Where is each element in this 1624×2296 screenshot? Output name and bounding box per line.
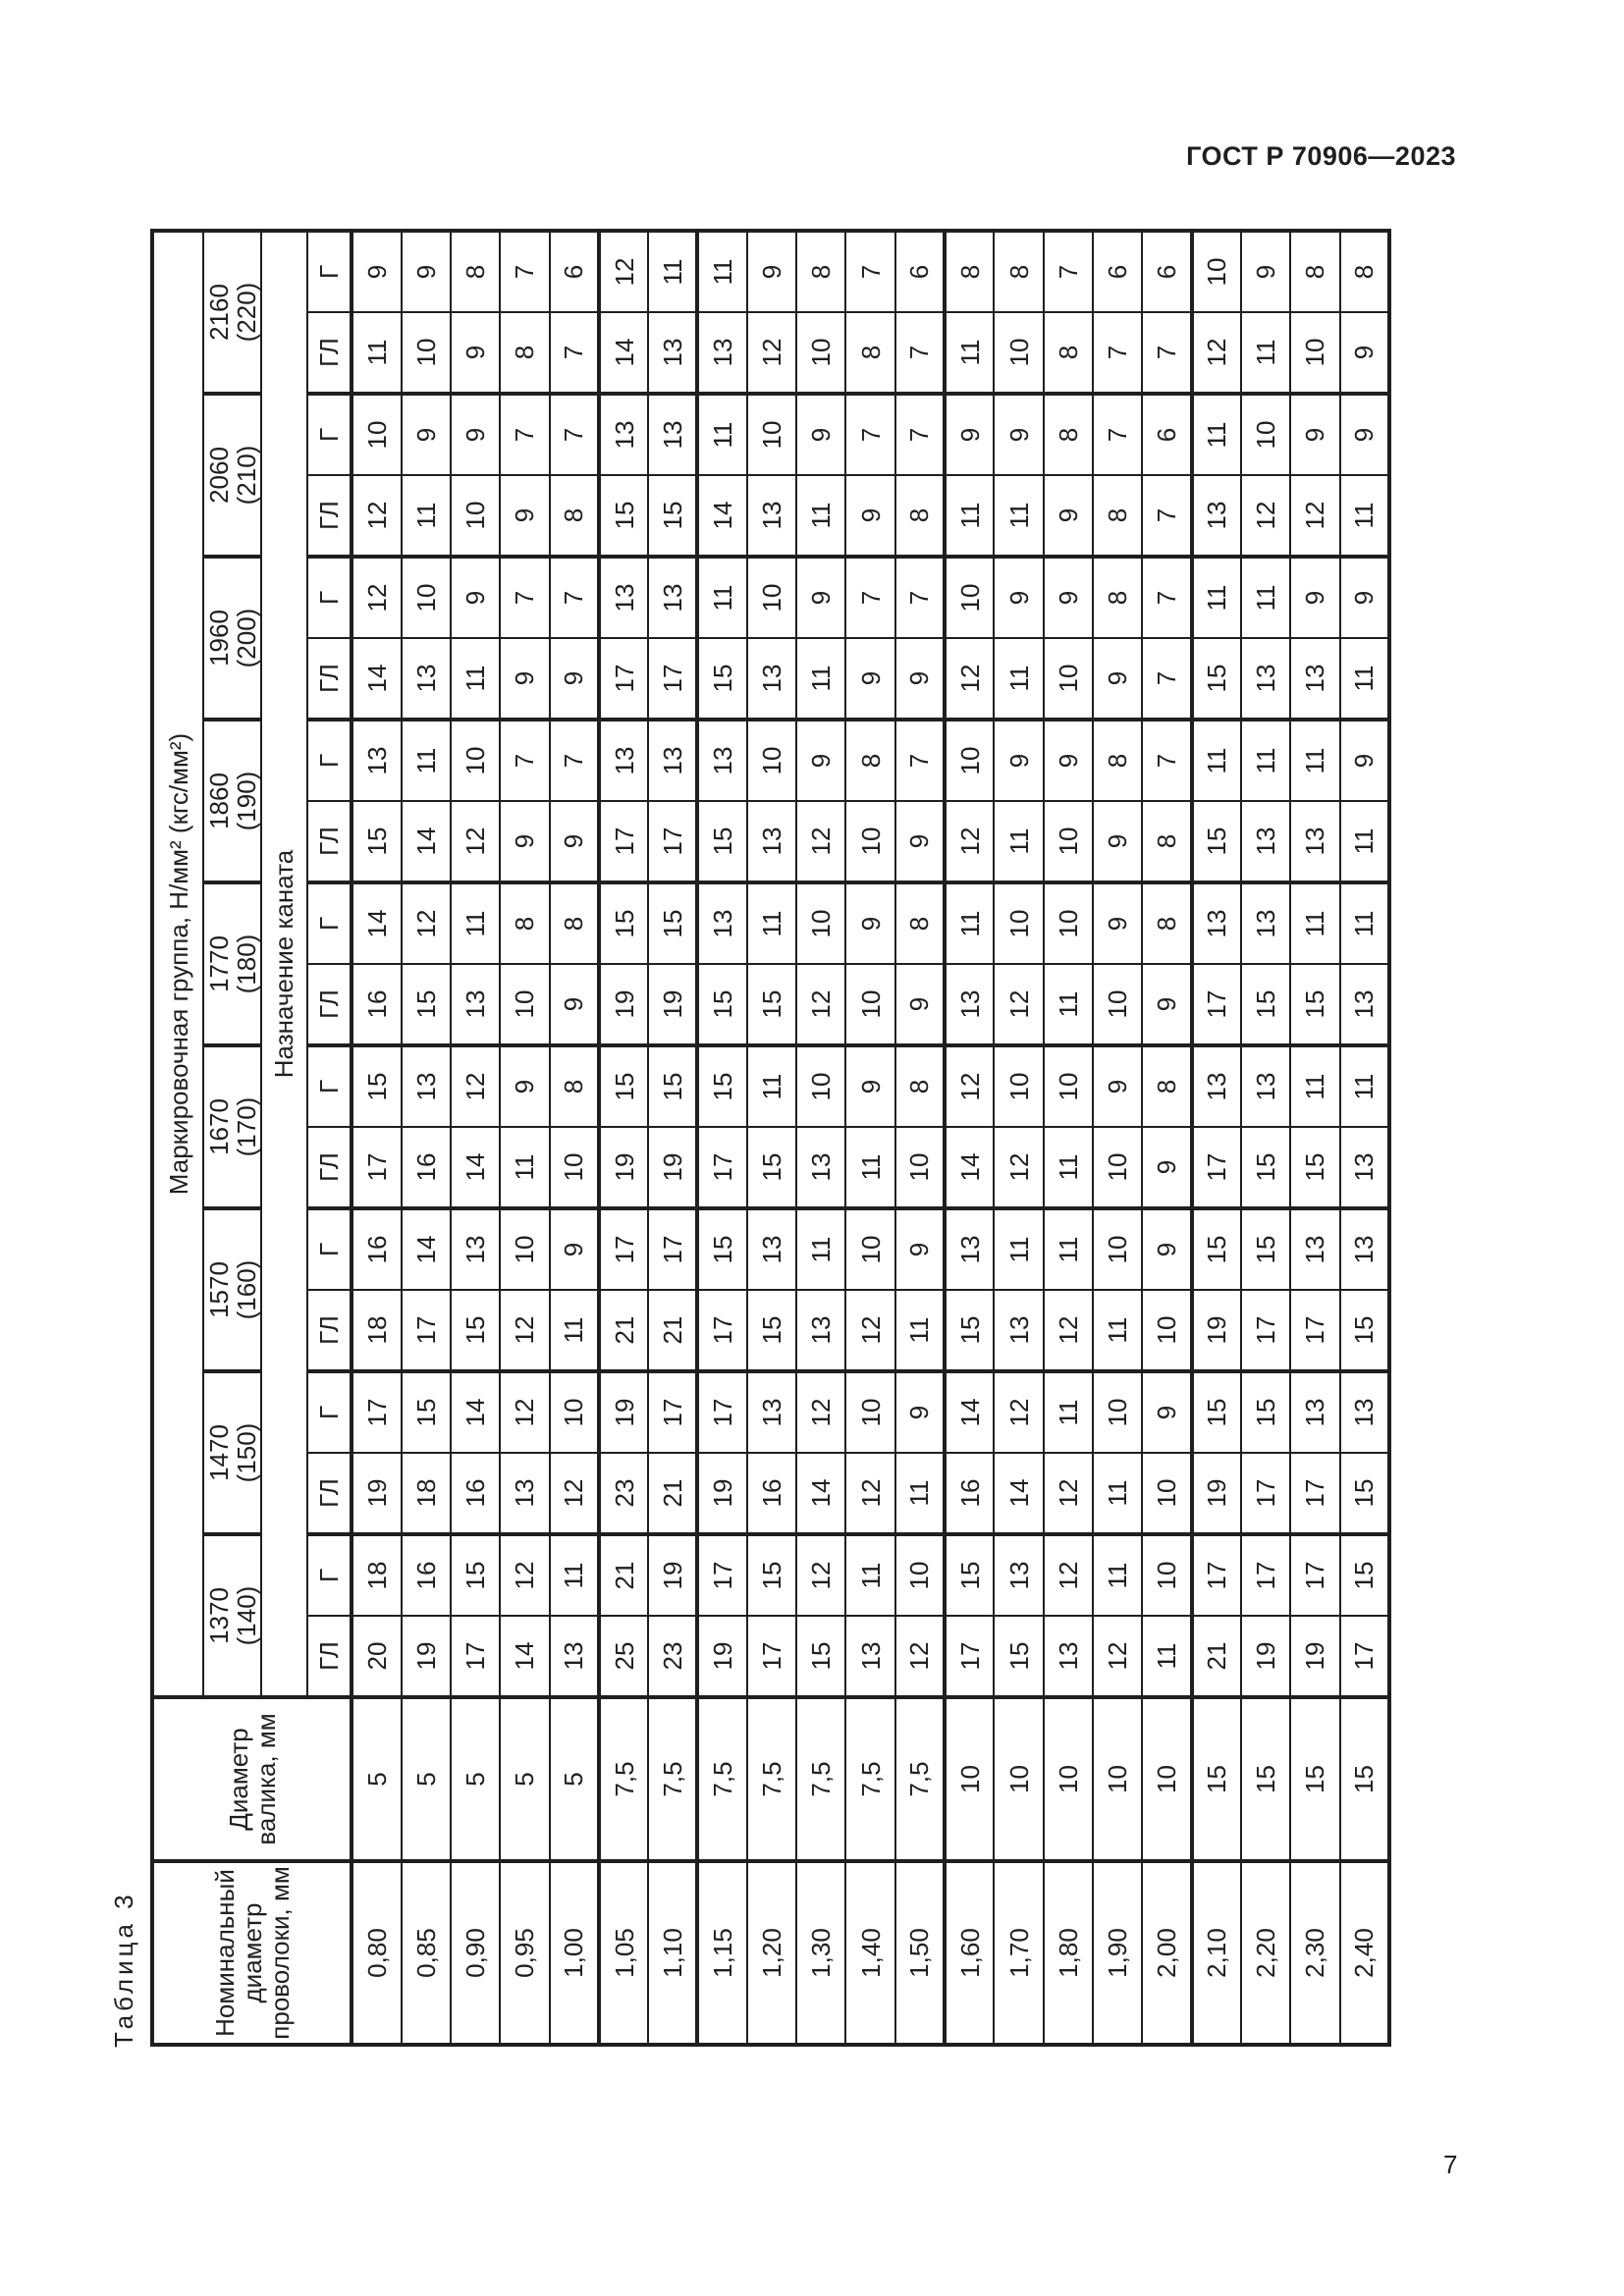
wire-diameter-value: 1,05 [599,1861,648,2045]
bend-value-g: 16 [402,1534,451,1616]
table-row: 1,207,5171516131513151115111310131013101… [747,231,796,2045]
bend-value-gl: 15 [747,1127,796,1208]
subheader-gl: ГЛ [307,1290,352,1371]
bend-value-g: 10 [796,1045,845,1127]
group-label: 1670 (170) [203,1045,260,1208]
bend-value-g: 8 [1290,231,1339,312]
bend-value-g: 7 [500,231,549,312]
roller-diameter-value: 10 [994,1697,1043,1861]
bend-value-g: 17 [1241,1534,1290,1616]
bend-value-g: 15 [648,1045,697,1127]
bend-value-g: 8 [1340,231,1389,312]
bend-value-g: 17 [352,1371,401,1453]
roller-diameter-header: Диаметр валика, мм [152,1697,352,1861]
bend-value-g: 9 [747,231,796,312]
bend-value-gl: 11 [994,475,1043,557]
bend-value-gl: 12 [945,638,994,720]
bend-value-g: 10 [500,1208,549,1290]
bend-value-g: 6 [1142,394,1191,475]
bend-value-gl: 15 [994,1616,1043,1697]
bend-value-gl: 9 [895,638,945,720]
bend-value-g: 15 [648,882,697,964]
wire-diameter-value: 1,90 [1093,1861,1142,2045]
bend-value-gl: 8 [550,475,599,557]
wire-diameter-value: 2,00 [1142,1861,1191,2045]
wire-diameter-value: 0,90 [451,1861,500,2045]
bend-value-gl: 19 [352,1453,401,1534]
bend-value-g: 9 [994,394,1043,475]
group-label: 1470 (150) [203,1371,260,1534]
bend-value-g: 15 [402,1371,451,1453]
bend-value-gl: 17 [402,1290,451,1371]
bend-value-g: 7 [550,394,599,475]
bend-value-g: 11 [1241,557,1290,638]
bend-value-g: 9 [1340,557,1389,638]
bend-value-gl: 18 [402,1453,451,1534]
bend-value-gl: 9 [1093,638,1142,720]
subheader-gl: ГЛ [307,1127,352,1208]
table-row: 0,90517151614151314121311121011910998 [451,231,500,2045]
bend-value-g: 9 [796,720,845,801]
bend-value-gl: 10 [550,1127,599,1208]
bend-value-gl: 17 [945,1616,994,1697]
group-label: 1370 (140) [203,1534,260,1697]
bend-value-gl: 19 [648,964,697,1045]
bend-value-g: 9 [402,394,451,475]
bend-value-gl: 17 [1290,1453,1339,1534]
bend-value-gl: 14 [451,1127,500,1208]
bend-value-gl: 14 [402,801,451,882]
bend-value-g: 8 [550,882,599,964]
bend-value-g: 17 [648,1208,697,1290]
bend-value-gl: 10 [402,312,451,394]
roller-diameter-value: 5 [500,1697,549,1861]
bend-value-gl: 10 [895,1127,945,1208]
bend-value-g: 13 [697,882,746,964]
bend-value-g: 11 [796,1208,845,1290]
bend-value-g: 12 [352,557,401,638]
bend-value-gl: 10 [1142,1453,1191,1534]
bend-value-g: 7 [500,557,549,638]
bend-value-g: 7 [845,231,894,312]
bend-value-g: 8 [1142,1045,1191,1127]
bend-value-gl: 9 [550,638,599,720]
bend-value-g: 7 [1142,720,1191,801]
bend-value-g: 9 [500,1045,549,1127]
bend-value-gl: 19 [697,1616,746,1697]
bend-value-gl: 12 [1044,1453,1093,1534]
bend-value-g: 8 [994,231,1043,312]
bend-value-g: 8 [1093,557,1142,638]
bend-value-g: 8 [500,882,549,964]
roller-diameter-value: 7,5 [599,1697,648,1861]
bend-value-g: 11 [1290,720,1339,801]
bend-value-gl: 16 [402,1127,451,1208]
bend-value-g: 11 [697,394,746,475]
bend-value-g: 12 [994,1371,1043,1453]
bend-value-g: 15 [451,1534,500,1616]
bend-value-g: 13 [1290,1371,1339,1453]
bend-value-gl: 10 [1142,1290,1191,1371]
roller-diameter-value: 5 [451,1697,500,1861]
bend-value-gl: 17 [599,801,648,882]
bend-value-gl: 7 [895,312,945,394]
bend-value-gl: 13 [648,312,697,394]
bend-value-gl: 14 [796,1453,845,1534]
bend-value-g: 11 [845,1534,894,1616]
bend-value-g: 11 [402,720,451,801]
bend-value-gl: 13 [845,1616,894,1697]
bend-value-gl: 16 [451,1453,500,1534]
wire-diameter-value: 1,40 [845,1861,894,2045]
bend-value-g: 8 [1044,394,1093,475]
bend-value-gl: 9 [1340,312,1389,394]
subheader-gl: ГЛ [307,1453,352,1534]
bend-value-gl: 23 [648,1616,697,1697]
roller-diameter-value: 7,5 [796,1697,845,1861]
bend-value-gl: 11 [796,638,845,720]
table-row: 2,20151917171517151513151313111311121011… [1241,231,1290,2045]
bend-value-gl: 8 [1142,801,1191,882]
bend-value-gl: 12 [895,1616,945,1697]
bend-value-gl: 17 [697,1290,746,1371]
bend-value-gl: 11 [1241,312,1290,394]
bend-value-gl: 13 [402,638,451,720]
bend-value-g: 7 [1093,394,1142,475]
bend-value-g: 13 [747,1371,796,1453]
bend-value-g: 9 [1044,557,1093,638]
wire-diameter-value: 1,10 [648,1861,697,2045]
roller-diameter-value: 5 [352,1697,401,1861]
roller-diameter-value: 15 [1290,1697,1339,1861]
bend-value-g: 8 [451,231,500,312]
bend-value-g: 7 [845,394,894,475]
bend-value-gl: 13 [1241,801,1290,882]
bend-value-gl: 11 [1340,638,1389,720]
subheader-g: Г [307,882,352,964]
bend-value-g: 8 [550,1045,599,1127]
bend-value-g: 9 [895,1371,945,1453]
bend-value-gl: 13 [500,1453,549,1534]
bend-value-g: 8 [845,720,894,801]
roller-diameter-value: 7,5 [648,1697,697,1861]
bend-value-g: 11 [1241,720,1290,801]
bend-value-g: 11 [1044,1208,1093,1290]
bend-value-g: 8 [1142,882,1191,964]
subheader-gl: ГЛ [307,312,352,394]
bend-value-g: 13 [1290,1208,1339,1290]
bend-value-g: 9 [845,1045,894,1127]
bend-value-gl: 21 [1192,1616,1241,1697]
bend-value-g: 15 [1241,1208,1290,1290]
document-page: { "page": { "header": "ГОСТ Р 70906—2023… [0,0,1624,2296]
bend-value-gl: 10 [845,801,894,882]
wire-diameter-value: 1,60 [945,1861,994,2045]
roller-diameter-value: 7,5 [697,1697,746,1861]
table-row: 1,407,5131112101210119109108979787 [845,231,894,2045]
bend-value-g: 7 [550,720,599,801]
bend-value-gl: 15 [1340,1453,1389,1534]
bend-value-gl: 13 [1340,964,1389,1045]
bend-value-gl: 19 [697,1453,746,1534]
bend-value-gl: 11 [895,1290,945,1371]
bend-value-g: 9 [1340,394,1389,475]
bend-value-gl: 9 [845,638,894,720]
bend-value-g: 17 [697,1371,746,1453]
wire-diameter-value: 2,20 [1241,1861,1290,2045]
table-caption: Таблица 3 [106,1828,141,2048]
bend-value-gl: 11 [1044,1127,1093,1208]
table-row: 1,507,512101191191089897978776 [895,231,945,2045]
bend-value-gl: 13 [1044,1616,1093,1697]
page-number: 7 [1443,2150,1457,2180]
bend-value-gl: 20 [352,1616,401,1697]
roller-diameter-value: 10 [1044,1697,1093,1861]
bend-value-g: 9 [352,231,401,312]
bend-value-g: 10 [845,1208,894,1290]
subheader-g: Г [307,1045,352,1127]
bend-value-gl: 12 [1241,475,1290,557]
bend-value-g: 13 [599,557,648,638]
bend-value-g: 9 [402,231,451,312]
bend-value-gl: 11 [895,1453,945,1534]
bend-value-gl: 12 [845,1290,894,1371]
table-data-body: 0,80520181917181617151614151314121210119… [352,231,1389,2045]
bend-value-g: 10 [451,720,500,801]
bend-value-gl: 15 [697,964,746,1045]
bend-value-gl: 11 [994,801,1043,882]
bend-value-gl: 11 [1093,1290,1142,1371]
bend-value-gl: 10 [994,312,1043,394]
bend-value-gl: 13 [1290,638,1339,720]
bend-value-g: 11 [1044,1371,1093,1453]
bend-value-gl: 13 [1241,638,1290,720]
bend-value-gl: 13 [550,1616,599,1697]
bend-value-gl: 12 [994,1127,1043,1208]
roller-diameter-value: 10 [1142,1697,1191,1861]
bend-value-gl: 7 [1093,312,1142,394]
bend-value-g: 17 [1192,1534,1241,1616]
bend-value-g: 11 [747,882,796,964]
bend-value-g: 13 [1340,1371,1389,1453]
bend-value-gl: 11 [945,312,994,394]
wire-diameter-value: 1,80 [1044,1861,1093,2045]
table-row: 0,95514121312121011910897979787 [500,231,549,2045]
bend-value-g: 6 [550,231,599,312]
bend-value-g: 9 [796,394,845,475]
document-standard-number: ГОСТ Р 70906—2023 [0,141,1456,172]
bend-value-gl: 11 [796,475,845,557]
bend-value-g: 10 [1241,394,1290,475]
bend-value-g: 13 [352,720,401,801]
table-row: 1,307,515121412131113101210129119119108 [796,231,845,2045]
bend-value-gl: 9 [895,801,945,882]
group-label: 1570 (160) [203,1208,260,1371]
bend-value-gl: 17 [352,1127,401,1208]
bend-value-g: 15 [599,882,648,964]
bend-value-g: 7 [500,720,549,801]
bend-value-gl: 9 [895,964,945,1045]
bend-value-g: 11 [1290,882,1339,964]
bend-value-g: 17 [1290,1534,1339,1616]
bend-value-gl: 17 [1192,964,1241,1045]
bend-value-gl: 13 [796,1127,845,1208]
bend-value-g: 10 [895,1534,945,1616]
bend-value-gl: 15 [697,801,746,882]
table-row: 1,057,5252123192117191519151713171315131… [599,231,648,2045]
bend-value-g: 13 [648,557,697,638]
bend-value-gl: 9 [550,801,599,882]
bend-value-g: 13 [747,1208,796,1290]
bend-value-g: 10 [994,1045,1043,1127]
bend-value-gl: 12 [1093,1616,1142,1697]
table-row: 1,701015131412131112101210119119119108 [994,231,1043,2045]
bend-value-g: 13 [1340,1208,1389,1290]
subheader-gl: ГЛ [307,475,352,557]
bend-value-g: 12 [451,1045,500,1127]
table-row: 1,157,5191719171715171515131513151114111… [697,231,746,2045]
bend-value-gl: 9 [1044,475,1093,557]
bend-value-gl: 15 [1340,1290,1389,1371]
bend-value-g: 15 [352,1045,401,1127]
wire-diameter-value: 2,30 [1290,1861,1339,2045]
bend-value-g: 14 [402,1208,451,1290]
bend-value-g: 10 [945,720,994,801]
wire-diameter-value: 0,80 [352,1861,401,2045]
bend-value-gl: 12 [352,475,401,557]
bend-value-g: 9 [796,557,845,638]
wire-diameter-value: 1,15 [697,1861,746,2045]
bend-value-g: 11 [697,231,746,312]
bend-value-gl: 14 [945,1127,994,1208]
bend-value-gl: 13 [747,638,796,720]
bend-value-gl: 17 [1340,1616,1389,1697]
bend-value-g: 12 [500,1534,549,1616]
bend-value-gl: 9 [451,312,500,394]
bend-value-g: 11 [550,1534,599,1616]
group-label: 1960 (200) [203,557,260,720]
bend-value-gl: 11 [1340,801,1389,882]
subheader-g: Г [307,394,352,475]
bend-value-gl: 19 [1241,1616,1290,1697]
bend-value-gl: 11 [1044,964,1093,1045]
bend-value-gl: 19 [599,1127,648,1208]
bend-value-g: 9 [1142,1371,1191,1453]
bend-value-gl: 15 [945,1290,994,1371]
bend-value-g: 21 [599,1534,648,1616]
bend-value-g: 7 [1142,557,1191,638]
bend-value-g: 7 [845,557,894,638]
bend-value-gl: 13 [451,964,500,1045]
bend-value-g: 16 [352,1208,401,1290]
rotated-table-container: Номинальный диаметр проволоки, мм Диамет… [150,229,1391,2047]
bend-value-gl: 9 [845,475,894,557]
bend-value-g: 11 [747,1045,796,1127]
roller-diameter-value: 15 [1340,1697,1389,1861]
bend-value-gl: 15 [747,1290,796,1371]
subheader-gl: ГЛ [307,638,352,720]
bend-value-g: 15 [599,1045,648,1127]
bend-value-gl: 13 [697,312,746,394]
bend-value-g: 9 [994,557,1043,638]
bend-value-gl: 13 [1290,801,1339,882]
subheader-gl: ГЛ [307,801,352,882]
bend-value-g: 15 [1340,1534,1389,1616]
bend-value-g: 15 [1241,1371,1290,1453]
bend-value-g: 9 [550,1208,599,1290]
roller-diameter-value: 7,5 [895,1697,945,1861]
bend-value-gl: 10 [1290,312,1339,394]
subheader-g: Г [307,1208,352,1290]
table-row: 1,005131112101191089897978776 [550,231,599,2045]
bend-value-gl: 15 [1290,1127,1339,1208]
bend-value-gl: 15 [451,1290,500,1371]
wire-diameter-value: 1,20 [747,1861,796,2045]
bend-value-gl: 17 [648,801,697,882]
bend-value-g: 12 [1044,1534,1093,1616]
subheader-gl: ГЛ [307,964,352,1045]
bend-value-gl: 7 [1142,475,1191,557]
bend-value-gl: 19 [1192,1453,1241,1534]
bend-value-gl: 17 [451,1616,500,1697]
bend-value-g: 12 [945,1045,994,1127]
subheader-gl: ГЛ [307,1616,352,1697]
roller-diameter-value: 15 [1192,1697,1241,1861]
bend-value-gl: 10 [845,964,894,1045]
bend-value-g: 8 [796,231,845,312]
bend-value-gl: 10 [500,964,549,1045]
bend-value-gl: 11 [994,638,1043,720]
bend-value-g: 10 [1044,882,1093,964]
bend-value-gl: 16 [352,964,401,1045]
bend-value-g: 9 [1290,394,1339,475]
bend-value-gl: 11 [402,475,451,557]
bend-value-g: 9 [1340,720,1389,801]
table-row: 1,8010131212111211111011101091099887 [1044,231,1093,2045]
bend-value-gl: 10 [1044,801,1093,882]
bend-value-gl: 14 [500,1616,549,1697]
subheader-g: Г [307,1371,352,1453]
bend-value-gl: 9 [1093,801,1142,882]
subheader-g: Г [307,720,352,801]
bend-value-g: 17 [599,1208,648,1290]
bend-value-gl: 12 [747,312,796,394]
roller-diameter-value: 7,5 [747,1697,796,1861]
bend-value-gl: 15 [402,964,451,1045]
bend-value-g: 6 [1093,231,1142,312]
bend-value-gl: 15 [1192,801,1241,882]
bend-value-g: 7 [895,557,945,638]
bend-value-gl: 8 [1044,312,1093,394]
bend-value-gl: 13 [945,964,994,1045]
bend-value-gl: 17 [599,638,648,720]
roller-diameter-value: 10 [945,1697,994,1861]
bend-value-gl: 13 [747,475,796,557]
bend-value-gl: 17 [697,1127,746,1208]
bend-value-gl: 15 [1290,964,1339,1045]
bend-value-g: 11 [1093,1534,1142,1616]
bend-value-g: 8 [895,882,945,964]
bend-value-gl: 17 [648,638,697,720]
bend-value-g: 10 [945,557,994,638]
bend-value-g: 18 [352,1534,401,1616]
bend-value-gl: 12 [845,1453,894,1534]
table-row: 0,8551916181517141613151214111310119109 [402,231,451,2045]
bend-value-g: 11 [1192,720,1241,801]
bend-value-g: 13 [1241,882,1290,964]
bend-value-g: 10 [747,557,796,638]
bend-value-g: 15 [697,1045,746,1127]
